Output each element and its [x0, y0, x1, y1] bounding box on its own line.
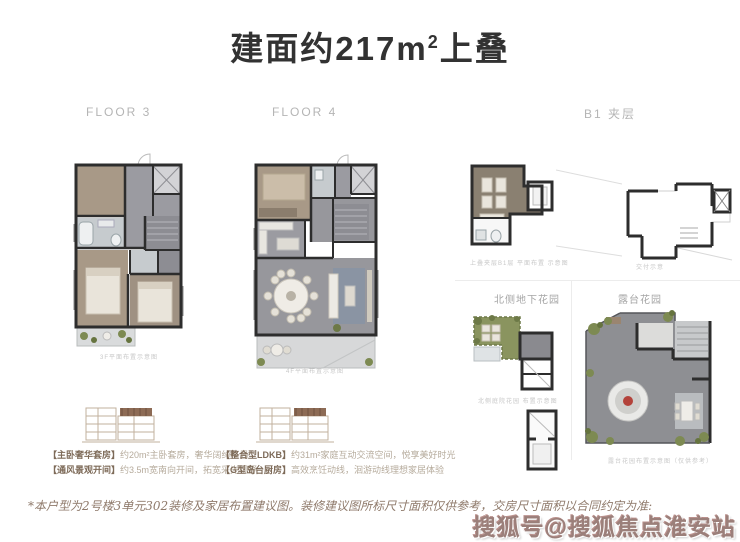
terrace-plan — [580, 303, 735, 455]
floorplan-sheet: 建面约217m2上叠 FLOOR 3 FLOOR 4 B1 夹层 — [0, 0, 740, 542]
watermark: 搜狐号@搜狐焦点淮安站 — [473, 508, 736, 542]
floor4-caption: 4F平面布置示意图 — [286, 366, 344, 375]
garden-caption: 北侧庭院花园 布置示意图 — [478, 396, 558, 405]
garden-plan — [462, 305, 562, 393]
floor3-label: FLOOR 3 — [86, 105, 151, 119]
legend-sketch-left — [78, 400, 164, 448]
floor4-label: FLOOR 4 — [272, 105, 337, 119]
legend-right-line1: 【整合型LDKB】约31m²家庭互动交流空间，悦享美好时光 — [221, 448, 456, 461]
garden-label: 北侧地下花园 — [494, 291, 560, 306]
b1-right-caption: 交付示意 — [636, 262, 664, 271]
floor4-plan — [233, 150, 395, 375]
b1-right-plan — [618, 166, 738, 268]
floor3-caption: 3F平面布置示意图 — [100, 352, 158, 361]
legend-right-line2: 【G型岛台厨房】高效烹饪动线，洄游动线理想家居体验 — [221, 463, 444, 476]
b1-label: B1 夹层 — [584, 105, 636, 122]
b1-left-caption: 上叠夹层B1层 平面布置 示意图 — [470, 258, 569, 267]
terrace-caption: 露台花园布置示意图（仅供参考） — [608, 456, 713, 465]
elevator-shaft — [524, 408, 560, 472]
garden-divider — [571, 280, 572, 460]
legend-sketch-right — [252, 400, 338, 448]
floor3-plan — [50, 150, 200, 360]
page-title: 建面约217m2上叠 — [0, 22, 740, 70]
b1-divider — [455, 280, 740, 281]
projection-lines — [556, 162, 622, 262]
b1-left-plan — [462, 156, 562, 252]
legend-left-line1: 【主卧奢华套房】约20m²主卧套房，奢华阔绰格局 — [48, 448, 249, 461]
